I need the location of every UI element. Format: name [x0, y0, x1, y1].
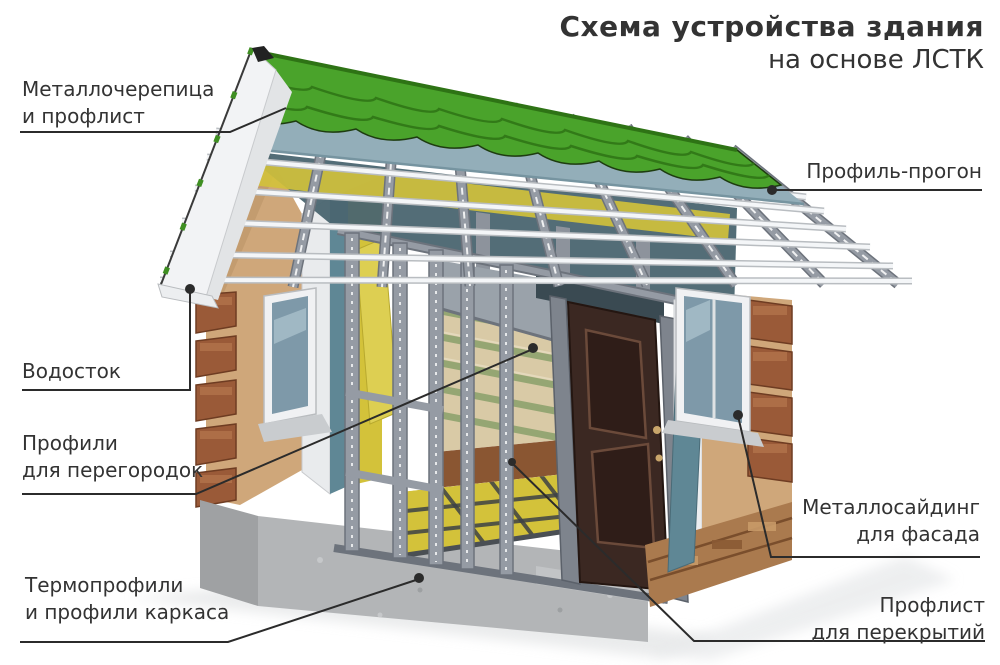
label-frame-line1: Термопрофили [25, 572, 229, 599]
label-siding-line1: Металлосайдинг [802, 494, 980, 521]
callout-dot-gutter [185, 284, 195, 294]
label-partition: Профили для перегородок [22, 430, 203, 484]
label-roofing: Металлочерепица и профлист [22, 76, 214, 130]
callout-dot-siding [733, 410, 743, 420]
diagram-title: Схема устройства здания [559, 10, 984, 44]
label-gutter-line1: Водосток [22, 358, 121, 385]
diagram-subtitle: на основе ЛСТК [559, 44, 984, 76]
label-frame: Термопрофили и профили каркаса [25, 572, 229, 626]
label-roofing-line1: Металлочерепица [22, 76, 214, 103]
callout-dot-purlin [767, 185, 777, 195]
diagram-canvas: Схема устройства здания на основе ЛСТК М… [0, 0, 1000, 665]
callout-dot-partition [528, 343, 538, 353]
right-window [662, 288, 764, 447]
callout-dot-decking [508, 458, 516, 466]
label-frame-line2: и профили каркаса [25, 599, 229, 626]
label-gutter: Водосток [22, 358, 121, 385]
label-siding: Металлосайдинг для фасада [802, 494, 980, 548]
label-roofing-line2: и профлист [22, 103, 214, 130]
label-decking-line1: Профлист [811, 592, 985, 619]
callout-dot-frame [414, 573, 424, 583]
label-purlin: Профиль-прогон [806, 158, 982, 185]
title-block: Схема устройства здания на основе ЛСТК [559, 10, 984, 76]
label-partition-line1: Профили [22, 430, 203, 457]
label-siding-line2: для фасада [802, 521, 980, 548]
label-decking-line2: для перекрытий [811, 619, 985, 646]
label-decking: Профлист для перекрытий [811, 592, 985, 646]
label-partition-line2: для перегородок [22, 457, 203, 484]
label-purlin-line1: Профиль-прогон [806, 158, 982, 185]
